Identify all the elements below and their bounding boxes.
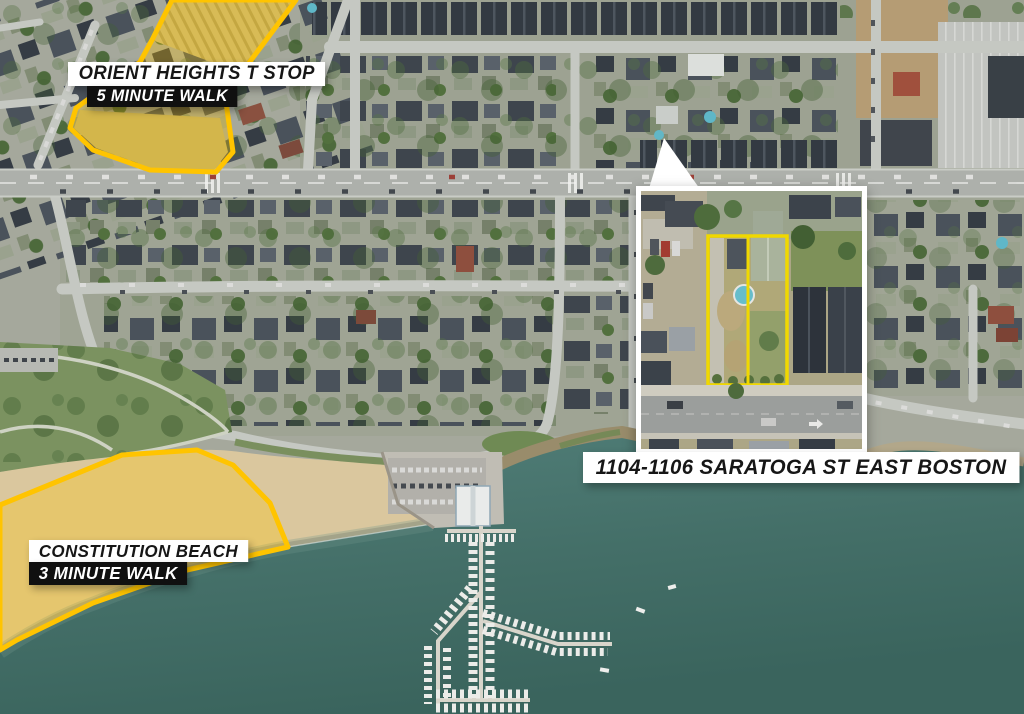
pool-icon — [307, 3, 317, 13]
orient-heights-banner: ORIENT HEIGHTS T STOP 5 MINUTE WALK — [68, 62, 333, 107]
property-callout-box — [636, 186, 867, 454]
commercial-blocks-northeast — [840, 0, 1024, 168]
pool-icon — [996, 237, 1008, 249]
aerial-map: ORIENT HEIGHTS T STOP 5 MINUTE WALK CONS… — [0, 0, 1024, 714]
constitution-beach-title: CONSTITUTION BEACH — [29, 540, 248, 562]
constitution-beach-subtitle: 3 MINUTE WALK — [29, 562, 187, 585]
pool-icon — [704, 111, 716, 123]
main-road — [0, 170, 1024, 197]
orient-heights-title: ORIENT HEIGHTS T STOP — [68, 62, 326, 86]
satellite-imagery — [0, 0, 1024, 714]
property-address-label: 1104-1106 SARATOGA ST EAST BOSTON — [583, 452, 1019, 483]
property-zoom-imagery — [641, 191, 862, 449]
pool-icon — [734, 285, 754, 305]
orient-heights-subtitle: 5 MINUTE WALK — [87, 86, 238, 107]
constitution-beach-banner: CONSTITUTION BEACH 3 MINUTE WALK — [29, 540, 255, 585]
